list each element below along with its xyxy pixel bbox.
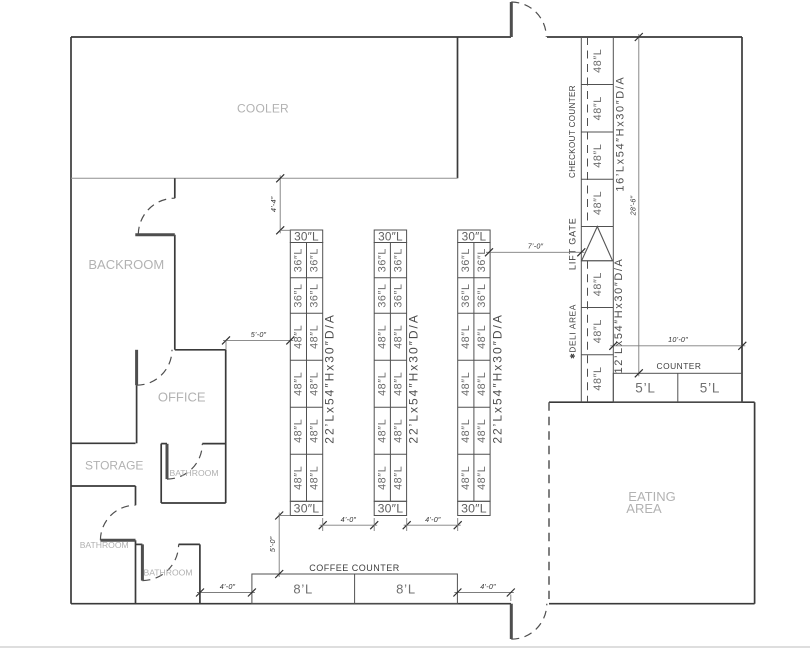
svg-text:36″L: 36″L <box>392 248 404 272</box>
svg-text:COUNTER: COUNTER <box>657 361 702 371</box>
svg-text:12’Lx54″Hx30″D/A: 12’Lx54″Hx30″D/A <box>613 258 625 374</box>
svg-text:36″L: 36″L <box>293 283 305 307</box>
svg-text:48″L: 48″L <box>376 325 388 349</box>
svg-text:30″L: 30″L <box>294 502 320 516</box>
svg-text:4’-0″: 4’-0″ <box>220 582 236 591</box>
svg-text:30″L: 30″L <box>294 230 319 244</box>
svg-text:48″L: 48″L <box>392 419 404 443</box>
svg-text:5’-0″: 5’-0″ <box>251 330 267 339</box>
svg-text:36″L: 36″L <box>460 283 472 307</box>
svg-text:48″L: 48″L <box>376 419 388 443</box>
svg-text:4’-0″: 4’-0″ <box>480 582 496 591</box>
svg-text:COFFEE COUNTER: COFFEE COUNTER <box>309 563 400 573</box>
svg-text:48″L: 48″L <box>309 466 321 490</box>
svg-text:28’-6″: 28’-6″ <box>629 195 638 216</box>
svg-text:OFFICE: OFFICE <box>158 389 206 404</box>
svg-text:BACKROOM: BACKROOM <box>88 257 164 272</box>
svg-text:48″L: 48″L <box>476 325 488 349</box>
svg-text:48″L: 48″L <box>309 419 321 443</box>
svg-text:48″L: 48″L <box>309 325 321 349</box>
svg-text:LIFT GATE: LIFT GATE <box>568 217 578 270</box>
svg-text:BATHROOM: BATHROOM <box>169 468 218 478</box>
svg-text:48″L: 48″L <box>592 319 604 343</box>
svg-text:48″L: 48″L <box>293 466 305 490</box>
svg-text:16’Lx54″Hx30″D/A: 16’Lx54″Hx30″D/A <box>614 76 626 192</box>
svg-text:BATHROOM: BATHROOM <box>80 540 129 550</box>
svg-text:22’Lx54″Hx30″D/A: 22’Lx54″Hx30″D/A <box>323 313 337 444</box>
svg-text:48″L: 48″L <box>460 372 472 396</box>
svg-text:48″L: 48″L <box>592 96 604 120</box>
svg-text:AREA: AREA <box>626 501 662 516</box>
svg-text:30″L: 30″L <box>461 502 487 516</box>
svg-text:4’-0″: 4’-0″ <box>341 515 357 524</box>
svg-text:5’L: 5’L <box>700 381 720 396</box>
svg-text:22’Lx54″Hx30″D/A: 22’Lx54″Hx30″D/A <box>490 313 504 444</box>
svg-text:48″L: 48″L <box>592 272 604 296</box>
svg-text:36″L: 36″L <box>293 248 305 272</box>
svg-text:STORAGE: STORAGE <box>85 459 143 473</box>
svg-text:22’Lx54″Hx30″D/A: 22’Lx54″Hx30″D/A <box>407 313 421 444</box>
svg-text:8’L: 8’L <box>293 581 313 596</box>
svg-text:48″L: 48″L <box>592 191 604 215</box>
svg-text:48″L: 48″L <box>592 49 604 73</box>
svg-text:48″L: 48″L <box>460 419 472 443</box>
svg-text:30″L: 30″L <box>378 230 403 244</box>
svg-text:36″L: 36″L <box>392 283 404 307</box>
svg-text:48″L: 48″L <box>592 144 604 168</box>
svg-text:36″L: 36″L <box>460 248 472 272</box>
svg-text:48″L: 48″L <box>293 419 305 443</box>
svg-text:5’L: 5’L <box>635 381 655 396</box>
svg-text:4’-0″: 4’-0″ <box>425 515 441 524</box>
svg-text:✱DELI AREA: ✱DELI AREA <box>568 304 577 359</box>
svg-text:36″L: 36″L <box>376 283 388 307</box>
svg-text:30″L: 30″L <box>378 502 404 516</box>
svg-text:36″L: 36″L <box>309 283 321 307</box>
svg-text:48″L: 48″L <box>460 466 472 490</box>
svg-text:48″L: 48″L <box>293 372 305 396</box>
svg-text:CHECKOUT COUNTER: CHECKOUT COUNTER <box>568 85 577 178</box>
svg-text:5’-0″: 5’-0″ <box>268 536 277 552</box>
svg-text:48″L: 48″L <box>460 325 472 349</box>
svg-text:36″L: 36″L <box>376 248 388 272</box>
svg-text:48″L: 48″L <box>309 372 321 396</box>
svg-text:COOLER: COOLER <box>237 101 289 115</box>
svg-text:8’L: 8’L <box>396 581 416 596</box>
svg-text:48″L: 48″L <box>376 372 388 396</box>
svg-text:48″L: 48″L <box>392 372 404 396</box>
svg-text:48″L: 48″L <box>392 325 404 349</box>
svg-text:7’-0″: 7’-0″ <box>528 242 544 251</box>
svg-text:48″L: 48″L <box>476 372 488 396</box>
svg-text:30″L: 30″L <box>462 230 487 244</box>
svg-text:36″L: 36″L <box>476 248 488 272</box>
svg-text:48″L: 48″L <box>376 466 388 490</box>
svg-text:48″L: 48″L <box>592 366 604 390</box>
svg-text:10’-0″: 10’-0″ <box>668 335 688 344</box>
svg-text:4’-4″: 4’-4″ <box>269 196 278 212</box>
svg-text:48″L: 48″L <box>476 419 488 443</box>
svg-text:36″L: 36″L <box>309 248 321 272</box>
svg-text:BATHROOM: BATHROOM <box>143 567 192 577</box>
svg-text:36″L: 36″L <box>476 283 488 307</box>
svg-text:48″L: 48″L <box>476 466 488 490</box>
svg-text:48″L: 48″L <box>392 466 404 490</box>
